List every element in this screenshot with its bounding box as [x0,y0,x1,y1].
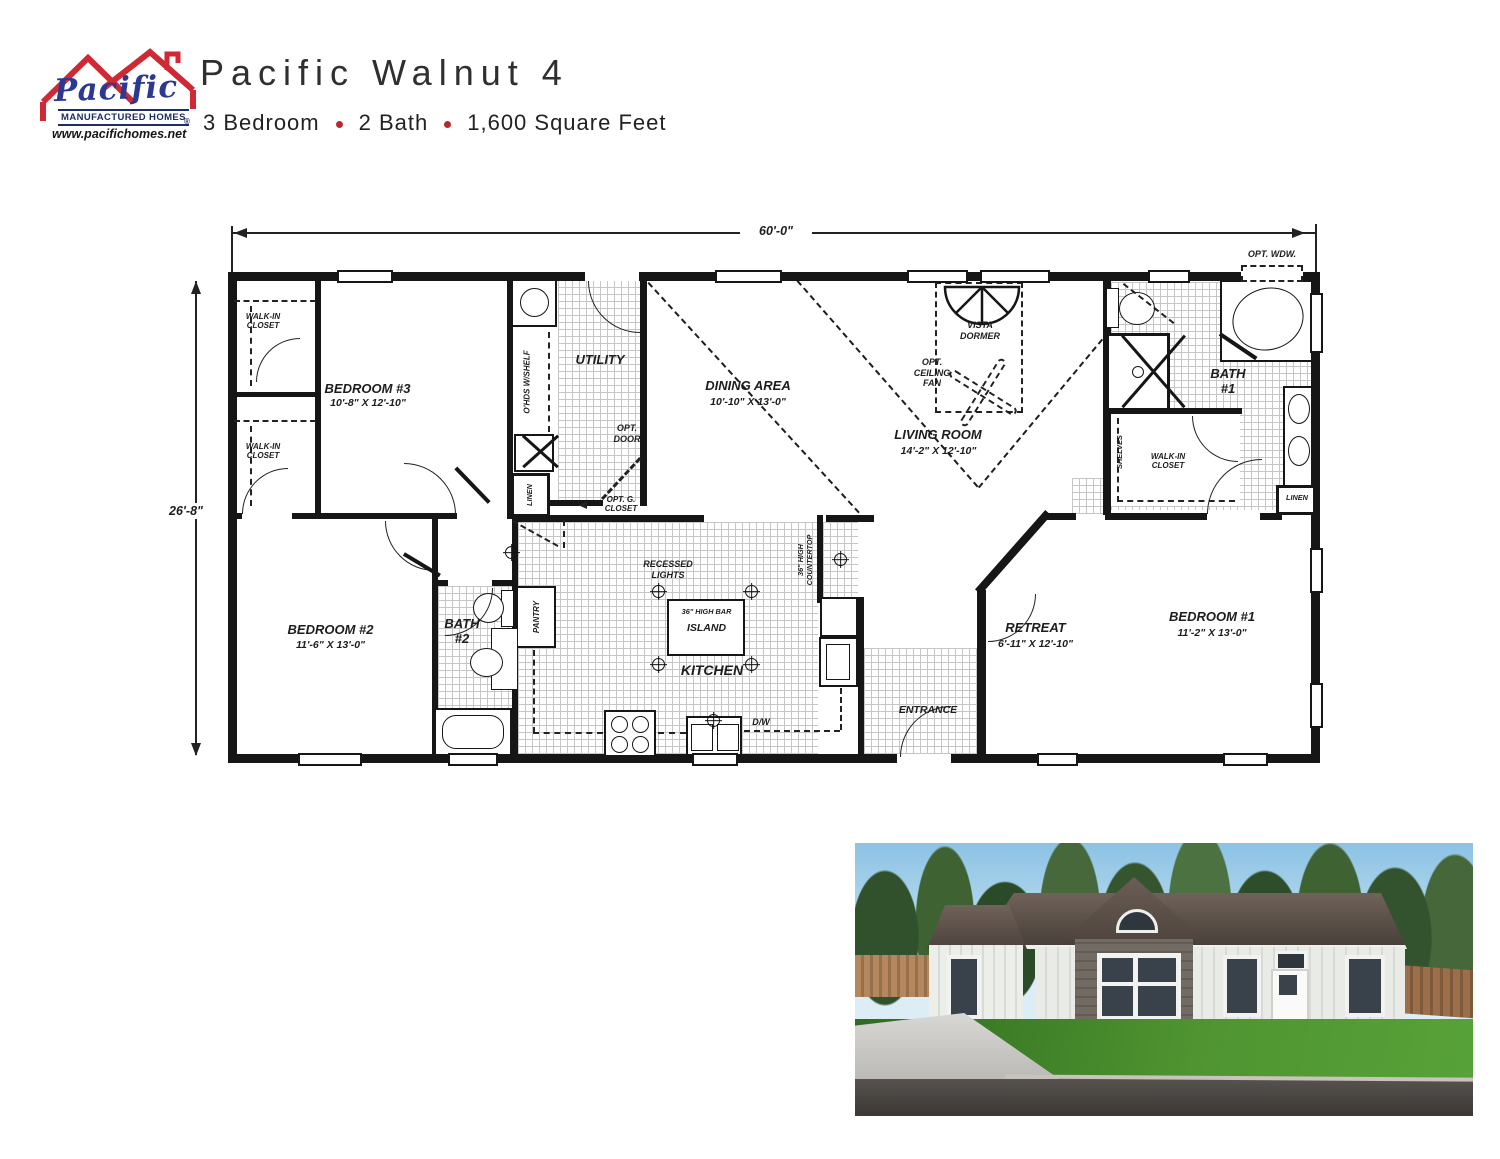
interior-wall [228,513,242,519]
window [337,270,393,283]
linen-label: LINEN [1280,494,1314,503]
spec-line: 3 Bedroom 2 Bath 1,600 Square Feet [203,110,666,136]
opt-door-label: OPT. DOOR [604,423,650,444]
bedroom3-door-arc [404,463,456,515]
arrow-left-icon [578,501,587,509]
window [907,270,968,283]
bath2-entry-wall [492,580,518,586]
spec-separator-dot [336,121,343,128]
bath1-sink [1288,394,1310,424]
spec-bedrooms: 3 Bedroom [203,110,320,136]
window [298,753,362,766]
island-label: ISLAND [671,622,742,634]
logo-website: www.pacifichomes.net [52,127,186,141]
exterior-wall-bottom [228,754,1320,763]
water-heater-box [514,434,554,472]
logo-registered-mark: ® [184,117,190,126]
overhead-shelf-label: O'HDS W/SHELF [521,330,535,435]
opt-window-outline [1241,265,1303,282]
bath2-entry-wall [432,580,448,586]
retreat-diagonal-wall [975,510,1051,595]
house-photo [855,843,1473,1116]
hall-floor-tile [1072,478,1105,514]
recessed-light-icon [834,553,847,566]
counter-dash [840,688,842,730]
oven-inner [826,644,850,680]
road [855,1079,1473,1116]
closet-shelf-dash [234,420,316,422]
bedroom3-door-leaf [455,467,491,504]
burner-icon [611,736,628,753]
sink-basin [691,724,713,751]
pacific-homes-logo: Pacific MANUFACTURED HOMES ® www.pacific… [38,45,198,147]
counter-dash [533,732,603,734]
room-dims-dining: 10'-10" X 13'-0" [697,396,799,408]
suite-top-wall [1111,513,1207,520]
room-label-entrance: ENTRANCE [890,704,966,716]
toilet-tank [1106,288,1119,328]
house-window [1223,955,1261,1017]
room-label-bedroom3: BEDROOM #3 [320,381,415,396]
refrigerator-box [820,597,858,637]
house [927,891,1407,1037]
house-picture-window [1097,953,1181,1021]
vista-dormer-label: VISTA DORMER [942,320,1018,341]
island-bar-label: 36" HIGH BAR [671,608,742,617]
house-transom [1275,951,1307,971]
house-window [947,955,981,1019]
room-dims-bedroom3: 10'-8" X 12'-10" [318,397,418,409]
opt-ceiling-fan-label: OPT. CEILING FAN [902,357,962,389]
walkin-closet-label: WALK-IN CLOSET [232,312,294,331]
flyer-page: Pacific MANUFACTURED HOMES ® www.pacific… [0,0,1500,1159]
dim-arrow-left [234,228,247,238]
logo-tagline: MANUFACTURED HOMES [58,109,189,126]
toilet-bowl [1119,292,1155,325]
utility-right-wall [640,272,647,506]
washer-icon [520,288,549,317]
sink-basin [717,724,739,751]
counter-dash [744,730,840,732]
window [1310,548,1323,593]
dim-arrow-right [1292,228,1305,238]
opt-window-label: OPT. WDW. [1236,249,1308,260]
house-window [1345,955,1385,1017]
counter-dash [658,732,686,734]
spec-sqft: 1,600 Square Feet [467,110,666,136]
closet-divider-wall [228,392,320,397]
room-label-dining: DINING AREA [693,378,803,393]
faucet-icon [707,714,720,727]
stove [604,710,656,757]
walkin-closet-label: WALK-IN CLOSET [1138,452,1198,471]
window [1037,753,1078,766]
overhead-shelf-dash [548,332,550,432]
dim-arrow-down [191,743,201,756]
opt-g-closet-label: OPT. G. CLOSET [594,495,648,514]
closet-shelf-dash [234,300,316,302]
linen-label: LINEN [524,475,536,515]
spec-baths: 2 Bath [359,110,429,136]
counter-wall [817,515,823,603]
bath1-sink [1288,436,1310,466]
countertop-label: 36" HIGH COUNTERTOP [795,528,817,592]
room-label-living: LIVING ROOM [883,427,993,442]
room-label-bedroom2: BEDROOM #2 [278,622,383,637]
window [692,753,738,766]
recessed-light-icon [652,585,665,598]
window [1310,293,1323,353]
kitchen-top-wall [826,515,874,522]
door-window [1279,975,1297,995]
pantry-label: PANTRY [531,589,543,645]
room-label-retreat: RETREAT [988,620,1083,635]
room-label-bath2: BATH #2 [436,616,488,647]
width-dimension-label: 60'-0" [740,223,812,239]
depth-dimension-label: 26'-8" [152,503,220,519]
shelves-label: SHELVES [1114,424,1126,480]
page-title: Pacific Walnut 4 [200,52,569,94]
room-dims-bedroom2: 11'-6" X 13'-0" [283,639,378,651]
bath2-tub-inner [442,715,504,749]
bath2-sink [470,648,503,677]
recessed-light-icon [745,585,758,598]
burner-icon [632,716,649,733]
retreat-top-wall [1046,513,1076,520]
entrance-right-wall [977,590,986,763]
closet1-door-arc [256,338,300,382]
dim-tick [231,226,233,274]
kitchen-entrance-wall [858,597,864,763]
closet2-door-arc [242,468,288,514]
opt-closet-dash [563,520,565,548]
bedroom2-door-arc [385,521,435,571]
utility-door-opening [585,272,639,281]
window [1310,683,1323,728]
window [980,270,1050,283]
room-dims-bedroom1: 11'-2" X 13'-0" [1158,627,1266,639]
window [1148,270,1190,283]
shower-drain [1132,366,1144,378]
burner-icon [632,736,649,753]
walkin-closet-label: WALK-IN CLOSET [232,442,294,461]
window [715,270,782,283]
room-label-utility: UTILITY [558,352,642,367]
recessed-lights-label: RECESSED LIGHTS [628,559,708,580]
dim-tick [1315,224,1317,274]
room-label-bedroom1: BEDROOM #1 [1152,609,1272,624]
recessed-light-icon [652,658,665,671]
dishwasher-label: D/W [744,717,778,728]
logo-brand: Pacific [53,69,178,109]
burner-icon [611,716,628,733]
window [1223,753,1268,766]
recessed-light-icon [505,546,518,559]
counter-dash [533,650,535,733]
room-dims-living: 14'-2" X 12'-10" [886,445,991,457]
room-dims-retreat: 6'-11" X 12'-10" [978,638,1093,650]
dim-arrow-up [191,281,201,294]
window [448,753,498,766]
spec-separator-dot [444,121,451,128]
room-label-kitchen: KITCHEN [672,662,752,679]
room-label-bath1: BATH #1 [1196,366,1260,397]
